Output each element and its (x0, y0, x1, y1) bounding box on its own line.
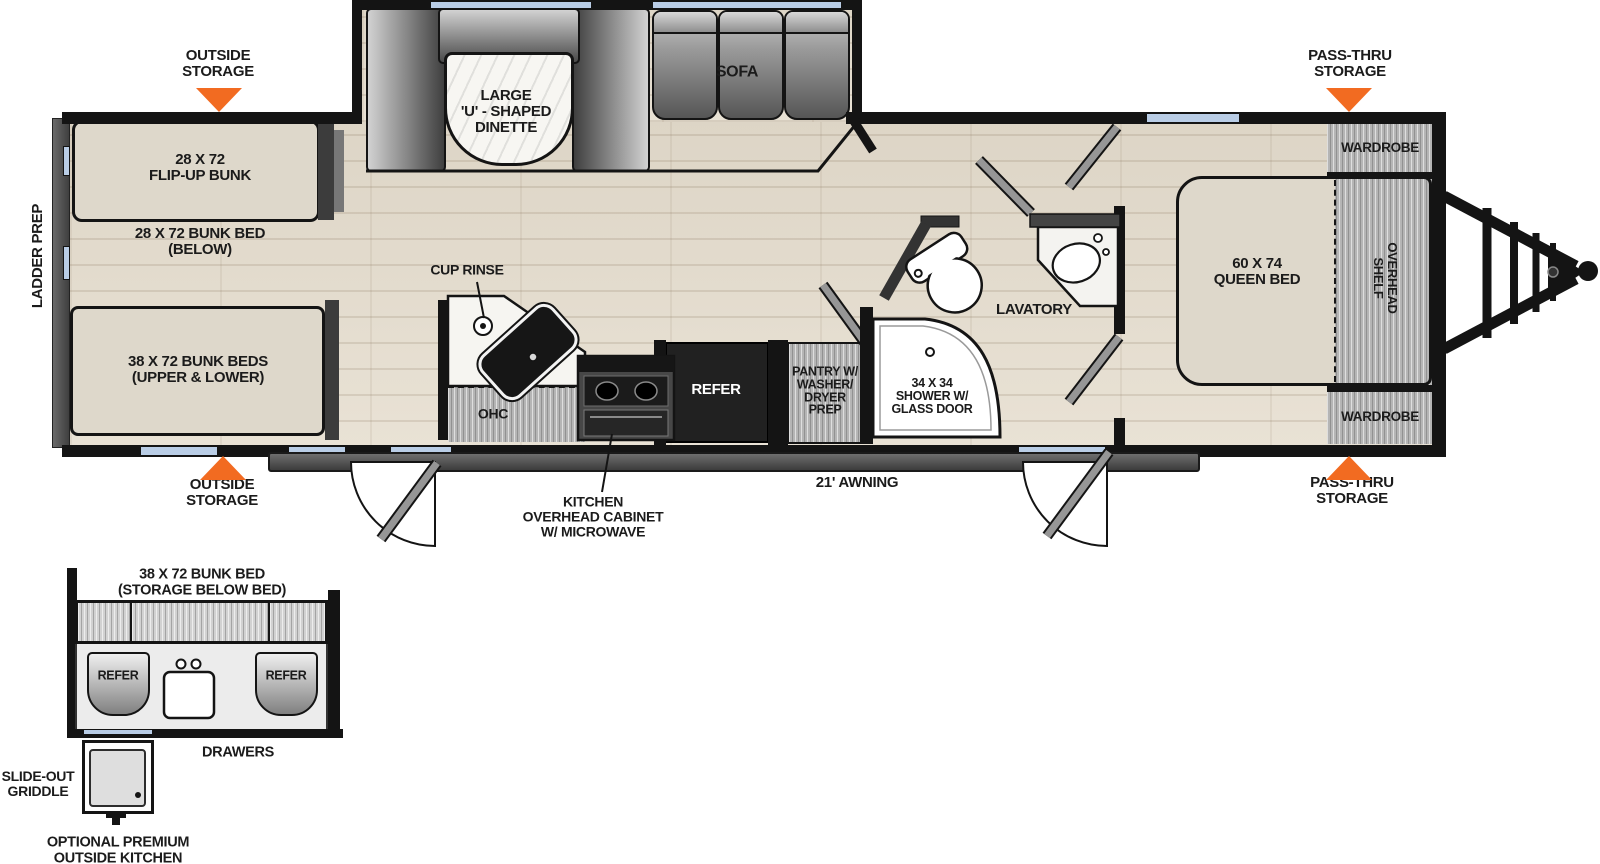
label-bunk-below: 28 X 72 BUNK BED (BELOW) (135, 226, 265, 258)
label-overhead-shelf: OVERHEAD SHELF (1371, 242, 1399, 313)
lavatory-door (1069, 127, 1117, 187)
hitch-coupler (1578, 261, 1598, 281)
kitchen-counter (448, 282, 585, 404)
ohc-pointer (602, 434, 612, 492)
label-refer: REFER (691, 382, 740, 398)
label-outside-storage-top: OUTSIDE STORAGE (182, 48, 254, 80)
label-queen-bed: 60 X 74 QUEEN BED (1214, 256, 1300, 288)
bathroom-door (979, 160, 1031, 213)
label-pantry: PANTRY W/ WASHER/ DRYER PREP (792, 366, 858, 417)
label-wardrobe-top: WARDROBE (1341, 141, 1419, 155)
vanity-sink (1030, 214, 1120, 306)
label-cup-rinse: CUP RINSE (430, 263, 503, 278)
label-wardrobe-bottom: WARDROBE (1341, 410, 1419, 424)
label-shower: 34 X 34 SHOWER W/ GLASS DOOR (891, 377, 972, 415)
label-ladder-prep: LADDER PREP (30, 204, 46, 308)
bedroom-door (1069, 337, 1119, 402)
label-inset-refer-left: REFER (98, 669, 139, 682)
arrow-outside-storage-top (196, 88, 242, 112)
label-dinette: LARGE 'U' - SHAPED DINETTE (461, 88, 551, 136)
label-inset-refer-right: REFER (266, 669, 307, 682)
label-sofa: SOFA (716, 63, 758, 80)
arrow-pass-thru-bottom (1326, 456, 1372, 480)
label-flip-up-bunk: 28 X 72 FLIP-UP BUNK (149, 152, 251, 184)
label-awning: 21' AWNING (816, 475, 899, 491)
inset-griddle-details (106, 792, 141, 825)
arrow-outside-storage-bottom (200, 456, 246, 480)
label-kitchen-overhead-cabinet: KITCHEN OVERHEAD CABINET W/ MICROWAVE (523, 495, 664, 540)
range-stove (578, 356, 674, 440)
label-bunk-beds: 38 X 72 BUNK BEDS (UPPER & LOWER) (128, 354, 268, 386)
entry-door-bedroom (1023, 452, 1109, 546)
label-outside-storage-bottom: OUTSIDE STORAGE (186, 477, 258, 509)
label-inset-bunk: 38 X 72 BUNK BED (STORAGE BELOW BED) (118, 568, 286, 599)
floorplan-diagram: OUTSIDE STORAGE PASS-THRU STORAGE OUTSID… (0, 0, 1600, 864)
label-slide-out-griddle: SLIDE-OUT GRIDDLE (2, 769, 75, 799)
slideout-floor-edge (366, 119, 860, 171)
sink-drain (529, 353, 537, 361)
detail-layer (0, 0, 1600, 864)
arrow-pass-thru-top (1326, 88, 1372, 112)
pantry-door (823, 285, 865, 343)
label-optional-kitchen: OPTIONAL PREMIUM OUTSIDE KITCHEN (47, 836, 189, 864)
label-ohc: OHC (478, 407, 508, 422)
inset-sink (164, 660, 214, 719)
label-lavatory: LAVATORY (996, 302, 1072, 318)
label-drawers: DRAWERS (202, 745, 274, 761)
entry-door-main (351, 462, 437, 546)
hitch-frame (1444, 196, 1598, 349)
label-pass-thru-top: PASS-THRU STORAGE (1308, 48, 1392, 80)
